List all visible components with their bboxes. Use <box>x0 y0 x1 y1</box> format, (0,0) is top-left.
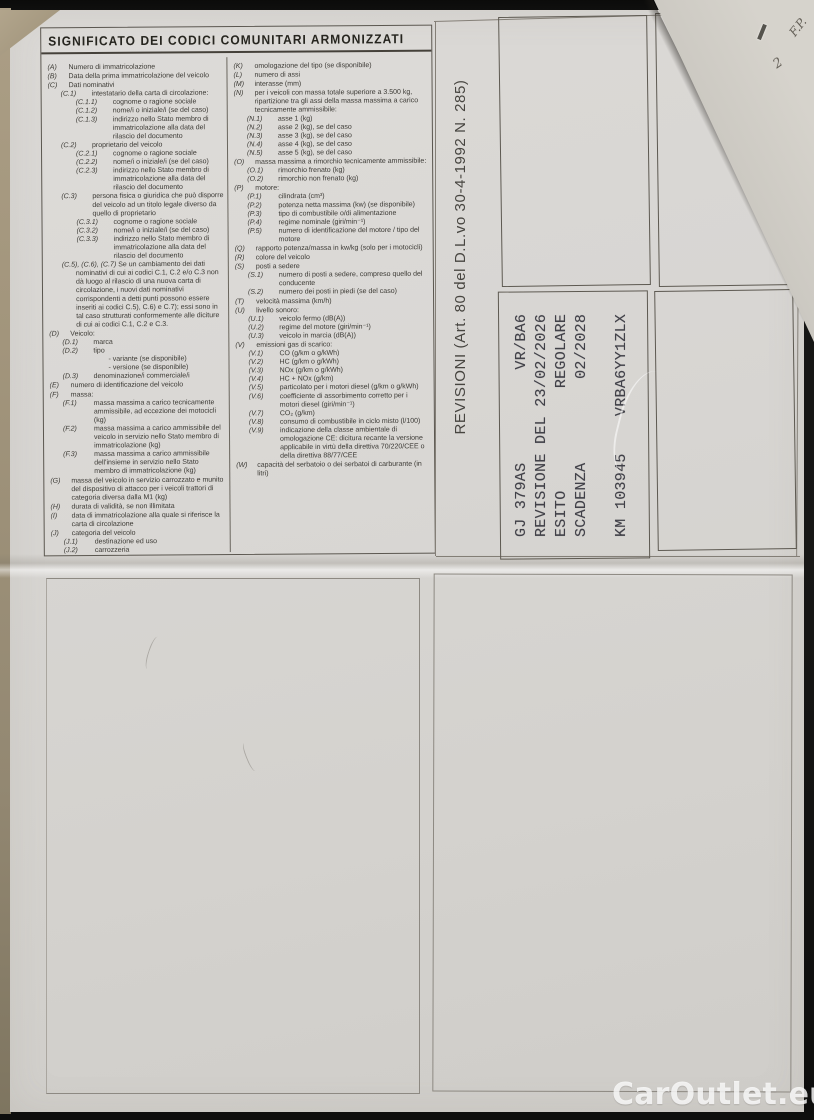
code-label: (B) <box>47 72 68 81</box>
code-entry: (C.1.3)indirizzo nello Stato membro di i… <box>76 114 224 141</box>
code-label: (V.9) <box>249 426 280 460</box>
code-text: veicolo in marcia (dB(A)) <box>279 330 428 340</box>
code-label: (P) <box>234 184 255 193</box>
revision-stamp: GJ 379AS VR/BA6REVISIONE DEL 23/02/2026E… <box>512 309 632 537</box>
code-label: (P.4) <box>247 218 278 227</box>
code-text: data di immatricolazione alla quale si r… <box>72 510 227 528</box>
code-label: (U.2) <box>248 323 279 332</box>
code-label: (C.1.1) <box>76 98 113 107</box>
code-label: (D.2) <box>62 346 93 355</box>
code-text: numero di posti a sedere, compreso quell… <box>279 269 428 287</box>
legend-columns: (A)Numero di immatricolazione(B)Data del… <box>41 56 433 554</box>
code-label: (C.3.1) <box>76 217 113 226</box>
code-label: (C.1.2) <box>76 106 113 115</box>
code-label: (U.1) <box>248 314 279 323</box>
code-label: (K) <box>233 61 254 70</box>
code-label: (Q) <box>235 244 256 253</box>
code-text: massa massima a carico ammissibile dell'… <box>94 449 226 476</box>
code-label: (M) <box>234 79 255 88</box>
code-text: numero dei posti in piedi (se del caso) <box>279 286 428 296</box>
code-entry: (I)data di immatricolazione alla quale s… <box>51 510 227 528</box>
codes-legend-panel: SIGNIFICATO DEI CODICI COMUNITARI ARMONI… <box>40 25 436 557</box>
stamp-line: GJ 379AS VR/BA6 <box>512 309 532 537</box>
code-entry: (J.2)carrozzeria <box>64 545 227 555</box>
code-label: (F.3) <box>63 450 94 476</box>
code-entry: (C.3)persona fisica o giuridica che può … <box>61 191 224 218</box>
code-entry: (C.2.3)indirizzo nello Stato membro di i… <box>76 165 224 192</box>
code-text: per i veicoli con massa totale superiore… <box>255 87 427 114</box>
code-label: (C.2.1) <box>76 149 113 158</box>
code-label: (O.2) <box>247 174 278 183</box>
code-label: (S) <box>235 262 256 271</box>
code-label: (E) <box>50 381 71 390</box>
code-text: persona fisica o giuridica che può dispo… <box>92 191 224 218</box>
page-title: SIGNIFICATO DEI CODICI COMUNITARI ARMONI… <box>48 31 427 49</box>
stamp-line: ESITO REGOLARE <box>552 309 572 537</box>
code-label: (W) <box>236 461 257 478</box>
code-text: massa massima a carico ammissibile del v… <box>94 423 226 450</box>
stamp-line: SCADENZA 02/2028 <box>572 309 592 537</box>
code-label: (P.3) <box>247 209 278 218</box>
code-label: (N.1) <box>247 114 278 123</box>
code-label: (V.6) <box>249 391 280 408</box>
code-text: numero di identificazione del motore / t… <box>279 225 428 243</box>
code-label: (T) <box>235 297 256 306</box>
legend-columns-clip: (A)Numero di immatricolazione(B)Data del… <box>41 56 434 556</box>
code-entry: (F.3)massa massima a carico ammissibile … <box>63 449 226 476</box>
code-text: capacità del serbatoio o dei serbatoi di… <box>257 459 429 477</box>
code-label: (C.2.2) <box>76 157 113 166</box>
code-label: (F.2) <box>63 424 94 450</box>
code-text: indirizzo nello Stato membro di immatric… <box>114 234 225 260</box>
code-text: indicazione della classe ambientale di o… <box>280 425 429 460</box>
stamp-line <box>592 309 612 537</box>
code-entry: (C.3.3)indirizzo nello Stato membro di i… <box>77 234 225 261</box>
code-entry: (P.5)numero di identificazione del motor… <box>248 225 428 243</box>
code-label: (F) <box>50 390 71 399</box>
code-label: (C.2.3) <box>76 166 113 192</box>
code-text: denominazione/i commerciale/i <box>94 371 226 380</box>
code-entry: (F.1)massa massima a carico tecnicamente… <box>63 397 226 424</box>
code-text: Data della prima immatricolazione del ve… <box>68 71 223 81</box>
code-label: (C.3.2) <box>77 226 114 235</box>
code-label: (U) <box>235 306 256 315</box>
code-label: (V.5) <box>249 383 280 392</box>
table-border-divider <box>435 21 436 556</box>
code-text: massa massima a carico tecnicamente ammi… <box>94 397 226 424</box>
code-label: (C.5), (C.6), (C.7) <box>62 260 118 268</box>
empty-box-left <box>46 578 420 1094</box>
code-label: (D) <box>49 329 70 338</box>
code-label: (D.3) <box>63 372 94 381</box>
watermark-caroutlet: CarOutlet.eu <box>612 1077 814 1112</box>
code-text: asse 5 (kg), se del caso <box>278 147 427 157</box>
code-entry: (G)massa del veicolo in servizio carrozz… <box>50 475 226 502</box>
code-entry: (W)capacità del serbatoio o dei serbatoi… <box>236 459 429 477</box>
code-label: (V.1) <box>248 349 279 358</box>
code-label: (N.3) <box>247 131 278 140</box>
code-text: carrozzeria <box>95 545 227 554</box>
code-entry: (V.9)indicazione della classe ambientale… <box>249 425 429 460</box>
code-text: numero di identificazione del veicolo <box>71 380 226 390</box>
code-label: (I) <box>51 511 72 528</box>
code-label: (V.7) <box>249 409 280 418</box>
empty-box-right <box>432 574 792 1093</box>
code-label: (N) <box>234 89 255 115</box>
legend-column-left: (A)Numero di immatricolazione(B)Data del… <box>41 57 229 553</box>
code-label: (O) <box>234 157 255 166</box>
revision-cell-top-left <box>498 15 651 287</box>
code-label: (V) <box>235 340 256 349</box>
code-label: (C.2) <box>61 140 92 149</box>
revisioni-section-label: REVISIONI (Art. 80 del D.L.vo 30-4-1992 … <box>452 73 470 441</box>
code-label: (V.8) <box>249 417 280 426</box>
code-entry: (C.5), (C.6), (C.7) Se un cambiamento de… <box>62 259 225 329</box>
code-label: (V.3) <box>249 366 280 375</box>
code-text: rimorchio non frenato (kg) <box>278 173 427 183</box>
code-label: (P.5) <box>248 226 279 243</box>
code-label: (U.3) <box>248 331 279 340</box>
code-label: (H) <box>50 502 71 511</box>
code-entry: (N)per i veicoli con massa totale superi… <box>234 87 427 114</box>
code-label: (L) <box>233 70 254 79</box>
legend-column-right: (K)omologazione del tipo (se disponibile… <box>226 56 433 552</box>
code-label: (N.5) <box>247 148 278 157</box>
code-label: (P.1) <box>247 192 278 201</box>
code-label: (C) <box>48 81 69 90</box>
code-text: Numero di immatricolazione <box>68 62 223 72</box>
code-label: (N.2) <box>247 123 278 132</box>
revision-cell-bottom-right <box>654 289 797 551</box>
code-label: (V.2) <box>248 357 279 366</box>
code-label: (D.1) <box>62 338 93 347</box>
code-label: (F.1) <box>63 398 94 424</box>
code-entry: (S.1)numero di posti a sedere, compreso … <box>248 269 428 287</box>
code-label: (V.4) <box>249 374 280 383</box>
code-label: (G) <box>50 476 71 502</box>
code-label: (J) <box>51 529 72 538</box>
code-label: (A) <box>47 63 68 72</box>
code-text: Se un cambiamento dei dati nominativi di… <box>76 259 220 328</box>
code-label: (P.2) <box>247 200 278 209</box>
code-entry: (F.2)massa massima a carico ammissibile … <box>63 423 226 450</box>
code-text: indirizzo nello Stato membro di immatric… <box>113 165 224 191</box>
code-text: indirizzo nello Stato membro di immatric… <box>113 114 224 140</box>
legend-title-bar: SIGNIFICATO DEI CODICI COMUNITARI ARMONI… <box>41 26 431 55</box>
code-label: (N.4) <box>247 140 278 149</box>
code-label: (C.1) <box>61 89 92 98</box>
code-text: durata di validità, se non illimitata <box>71 501 226 511</box>
code-label: (R) <box>235 253 256 262</box>
code-label: (C.3.3) <box>77 234 114 260</box>
code-label: (C.1.3) <box>76 115 113 141</box>
stamp-line: REVISIONE DEL 23/02/2026 <box>532 309 552 537</box>
code-text: massa del veicolo in servizio carrozzato… <box>71 475 226 502</box>
code-label: (S.1) <box>248 270 279 287</box>
code-label: (O.1) <box>247 166 278 175</box>
code-label: (S.2) <box>248 287 279 296</box>
code-label: (J.1) <box>64 537 95 546</box>
code-text: coefficiente di assorbimento corretto pe… <box>280 390 429 408</box>
code-label: (C.3) <box>61 192 92 218</box>
code-entry: (V.6)coefficiente di assorbimento corret… <box>249 390 429 408</box>
